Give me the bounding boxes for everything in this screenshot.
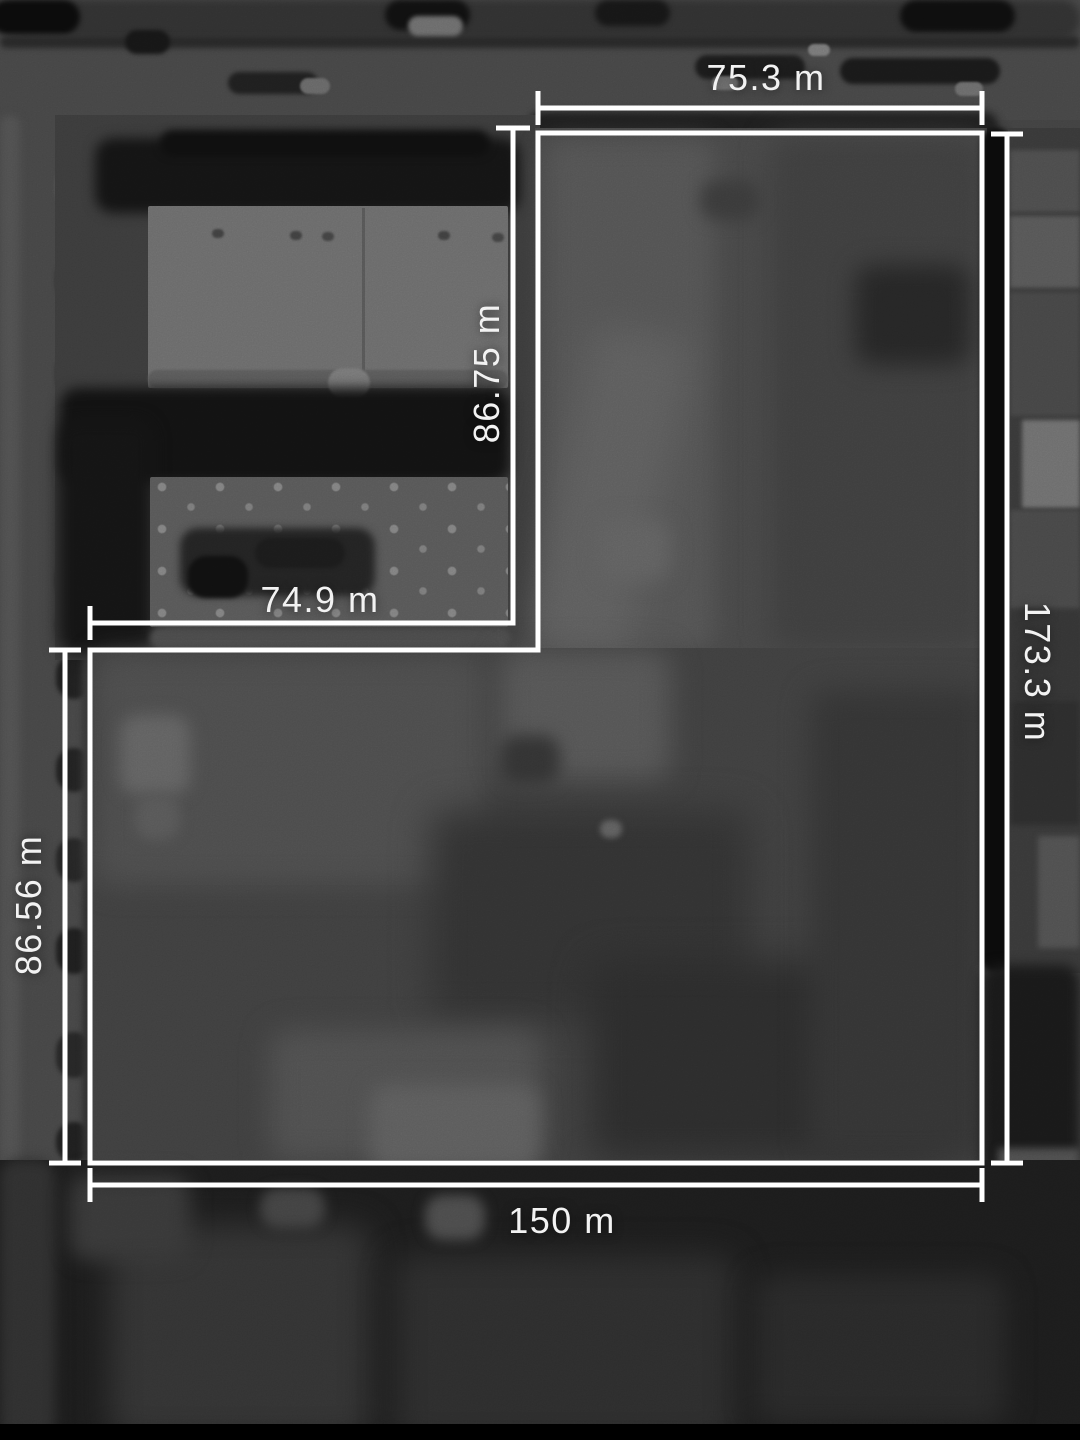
dimension-inner-notch [90, 128, 530, 640]
measurement-label-top: 75.3 m [706, 60, 825, 96]
measurement-label-bottom: 150 m [508, 1203, 616, 1239]
measurement-label-left: 86.56 m [11, 835, 47, 976]
dimension-bottom-width [90, 1168, 982, 1202]
parcel-boundary [90, 133, 982, 1163]
screenshot-root: 75.3 m 86.75 m 74.9 m 173.3 m 86.56 m 15… [0, 0, 1080, 1440]
measurement-label-right: 173.3 m [1019, 602, 1055, 743]
measurement-label-inner-horizontal: 74.9 m [260, 582, 379, 618]
measurement-label-inner-vertical: 86.75 m [469, 303, 505, 444]
dimension-left-height [49, 650, 81, 1163]
